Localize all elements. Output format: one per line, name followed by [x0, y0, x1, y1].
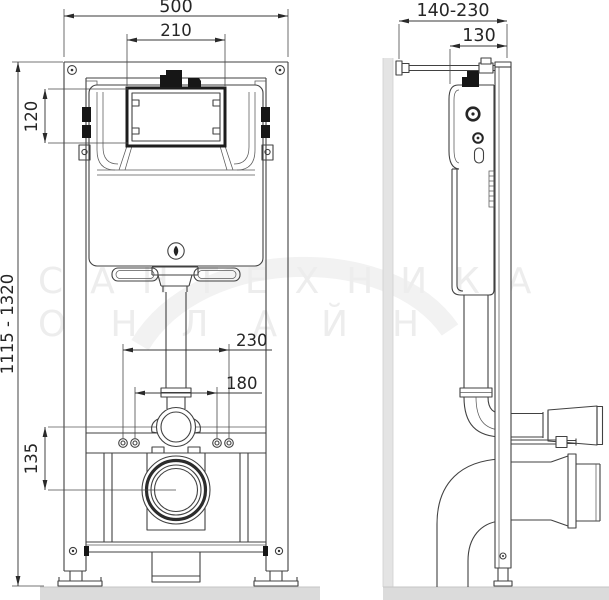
foot-plate-left — [58, 581, 102, 586]
inlet-elbow — [462, 71, 479, 87]
wc-stud-rod — [511, 437, 576, 448]
dim-wall-distance-label: 140-230 — [416, 1, 489, 21]
arrowhead — [64, 14, 74, 19]
arrowhead — [207, 391, 217, 396]
water-inlet-stub — [160, 70, 182, 87]
drain-elbow-side — [437, 459, 500, 587]
flush-plate-access-window — [127, 88, 225, 146]
anchor-hole-left-dot — [71, 69, 74, 72]
arrowhead — [278, 14, 288, 19]
arrowhead — [497, 44, 507, 49]
drain-front — [86, 447, 266, 582]
dim-inner-bolt-spacing: 180 — [135, 374, 262, 438]
arrowhead — [215, 38, 225, 43]
arrowhead — [43, 133, 48, 143]
dim-inner-bolt-spacing-label: 180 — [226, 374, 258, 393]
mounting-rack — [489, 171, 494, 207]
installation-frame-drawing: САНТЕХНИКА ОНЛАЙН — [0, 0, 609, 600]
arrowhead — [127, 38, 137, 43]
drain-socket-rim — [568, 454, 576, 528]
service-slot — [475, 148, 484, 163]
side-clip — [82, 107, 91, 122]
wc-mounting-rail — [48, 408, 266, 454]
drain-pipe-bottom — [152, 552, 200, 582]
flush-nozzle — [548, 406, 597, 445]
arrowhead — [16, 62, 21, 72]
stud-nut — [556, 437, 567, 448]
post-foot-plate — [494, 581, 512, 586]
arrowhead — [16, 576, 21, 586]
side-clip — [261, 107, 270, 122]
wall-anchor — [396, 61, 402, 75]
frame-post-side — [494, 62, 512, 586]
flush-bend-connector — [157, 408, 196, 447]
arrowhead — [497, 19, 507, 24]
arrowhead — [43, 89, 48, 99]
arrowhead — [450, 44, 460, 49]
watermark-line1: САНТЕХНИКА — [38, 261, 558, 302]
post-foot — [498, 568, 508, 581]
arrowhead — [135, 391, 145, 396]
arrowhead — [219, 348, 229, 353]
arrowhead — [123, 348, 133, 353]
pipe-coupling — [161, 388, 191, 397]
dim-window-width-label: 210 — [160, 21, 192, 40]
wall-support-rod — [396, 58, 495, 75]
arrowhead — [399, 19, 409, 24]
side-clip — [82, 125, 91, 138]
technical-drawing-page: САНТЕХНИКА ОНЛАЙН — [0, 0, 609, 600]
dim-frame-depth-label: 130 — [462, 26, 495, 46]
adjustable-foot-right — [270, 571, 282, 581]
dim-flush-to-drain-label: 135 — [22, 443, 41, 475]
arrowhead — [43, 480, 48, 490]
wall-strip — [383, 58, 393, 587]
drain-outlet-side — [511, 454, 600, 528]
side-tab-right — [262, 145, 273, 160]
dim-frame-height-label: 1115 - 1320 — [0, 274, 17, 374]
rod-nut — [402, 64, 409, 73]
side-clip — [261, 125, 270, 138]
arrowhead — [43, 427, 48, 437]
cistern-front — [79, 70, 273, 266]
rod-bolt — [481, 58, 491, 64]
dim-window-height-label: 120 — [22, 101, 41, 133]
adjustable-foot-left — [70, 571, 82, 581]
anchor-hole-right-dot — [279, 69, 282, 72]
floor-side-view — [383, 587, 609, 600]
side-tab-left — [79, 145, 90, 160]
dim-total-width-label: 500 — [159, 0, 192, 17]
inlet-stub-small — [188, 78, 201, 87]
foot-plate-right — [254, 581, 298, 586]
floor-front-view — [40, 587, 320, 600]
dim-outer-bolt-spacing-label: 230 — [236, 331, 268, 350]
